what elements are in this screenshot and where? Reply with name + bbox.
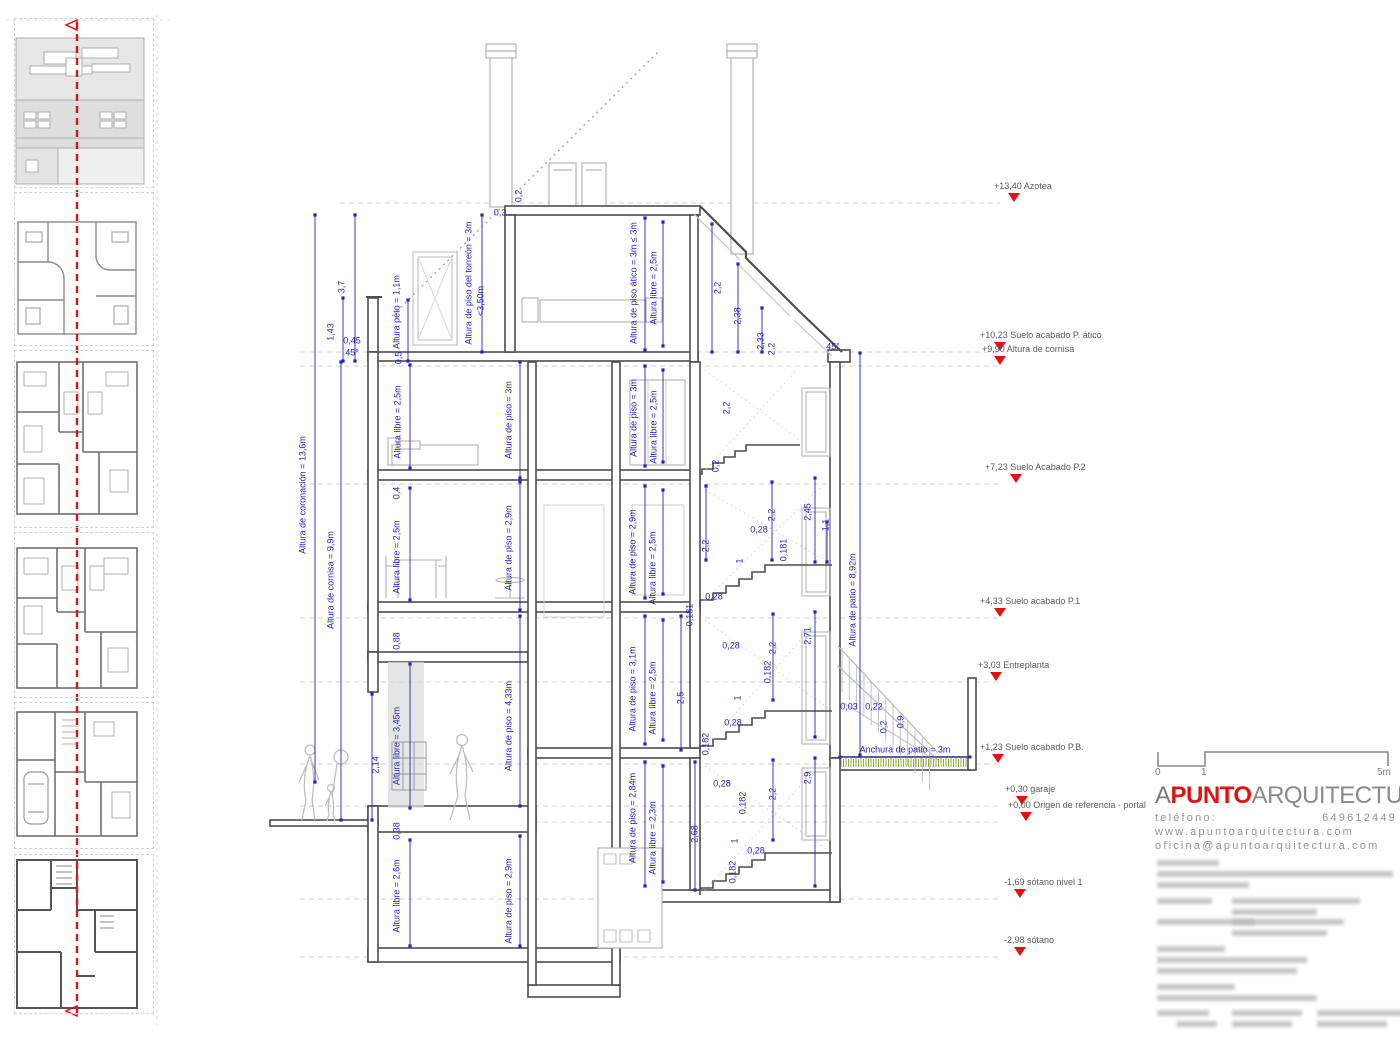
dimension-label: Altura de piso ático = 3m ≤ 3m <box>630 222 639 344</box>
dimension-label: Altura libre = 2,5m <box>649 661 658 734</box>
thumb-frame-6 <box>14 854 154 1014</box>
dimension-label: 2,2 <box>723 402 732 415</box>
dimension-label: 0,28 <box>750 526 768 535</box>
redacted-text-line <box>1232 930 1327 936</box>
level-marker-triangle <box>1014 889 1026 898</box>
dimension-label: Altura de piso = 3,1m <box>629 646 638 731</box>
email-address: oficina@apuntoarquitectura.com <box>1155 840 1380 852</box>
dimension-label: 0,2 <box>515 190 524 203</box>
dimension-label: 3,7 <box>338 281 347 294</box>
level-marker-triangle <box>1014 947 1026 956</box>
level-label: +1,23 Suelo acabado P.B. <box>980 743 1084 752</box>
level-marker-triangle <box>994 356 1006 365</box>
redacted-text-line <box>1157 968 1297 974</box>
phone-label: teléfono: <box>1155 812 1217 824</box>
dimension-label: Altura libre = 2,5m <box>393 520 402 593</box>
dimension-label: 0,28 <box>722 642 740 651</box>
dimension-label: 2,2 <box>768 509 777 522</box>
thumb-frame-3 <box>14 350 154 528</box>
dimension-label: Altura de piso = 3m <box>505 381 514 459</box>
phone-number: 649612449 <box>1322 812 1397 824</box>
elevator-shaft-panel <box>544 505 604 617</box>
dimension-label: Altura de cornisa = 9,9m <box>327 531 336 629</box>
dimension-label: 2,5 <box>677 692 686 705</box>
dimension-label: Altura libre = 2,6m <box>393 859 402 932</box>
dimension-label: 2,2 <box>714 282 723 295</box>
dimension-label: 0,28 <box>705 593 723 602</box>
thumb-frame-5 <box>14 702 154 849</box>
dimension-label: 2,14 <box>372 756 381 774</box>
dimension-label: Altura libre = 2,5m <box>394 385 403 458</box>
dimension-label: 0,5 <box>395 352 404 365</box>
web-line: www.apuntoarquitectura.com <box>1155 826 1397 838</box>
dimension-label: 2,33 <box>757 332 766 350</box>
scale-tick-1: 1 <box>1201 768 1207 778</box>
level-label: +0,00 Origen de referencia - portal <box>1008 801 1146 810</box>
dimension-label: 0,182 <box>764 661 773 684</box>
building-section-drawing <box>0 0 1400 1050</box>
dimension-label: 1,43 <box>327 323 336 341</box>
dimension-label: Altura de piso = 3m <box>630 379 639 457</box>
phone-line: teléfono: 649612449 <box>1155 812 1397 824</box>
dimension-label: 0,181 <box>686 604 695 627</box>
dimension-label: Altura peto = 1,1m <box>393 275 402 349</box>
redacted-text-line <box>1157 882 1249 888</box>
level-label: +10,23 Suelo acabado P. ático <box>980 331 1102 340</box>
dimension-label: Altura libre = 2,5m <box>649 531 658 604</box>
dimension-label: 0,28 <box>747 847 765 856</box>
redacted-text-line <box>1317 1021 1387 1027</box>
dimension-label: 0,3 <box>494 209 507 218</box>
redacted-text-line <box>1157 1010 1209 1016</box>
redacted-text-line <box>1157 860 1219 866</box>
dimension-label: 2,2 <box>702 540 711 553</box>
dimension-label: 1 <box>736 558 745 563</box>
dimension-label: 2,2 <box>768 343 777 356</box>
level-label: +4,33 Suelo acabado P.1 <box>980 597 1080 606</box>
dimension-label: 0,182 <box>729 861 738 884</box>
dimension-label: 2,68 <box>691 825 700 843</box>
redacted-text-line <box>1157 995 1317 1001</box>
floor-slabs <box>270 206 850 997</box>
dimension-label: Altura de coronación = 13,6m <box>299 436 308 554</box>
thumb-frame-2 <box>14 192 154 346</box>
redacted-text-line <box>1232 909 1317 915</box>
scale-tick-0: 0 <box>1155 768 1161 778</box>
redacted-text-line <box>1157 957 1307 963</box>
dimension-label: 0,4 <box>393 487 402 500</box>
redacted-text-line <box>1232 1010 1302 1016</box>
dimension-label: Altura de piso = 2,9m <box>505 505 514 590</box>
redacted-text-line <box>1317 1010 1400 1016</box>
dimension-label: <3,50m <box>477 286 486 316</box>
redacted-text-line <box>1157 984 1235 990</box>
email-line: oficina@apuntoarquitectura.com <box>1155 840 1397 852</box>
thumb-frame-4 <box>14 532 154 698</box>
redacted-text-line <box>1157 946 1225 952</box>
level-label: -2,98 sótano <box>1004 936 1054 945</box>
logo-part-a: A <box>1155 782 1171 809</box>
dimension-label: 0,22 <box>865 703 883 712</box>
dimension-label: Altura libre = 2,5m <box>650 251 659 324</box>
thumb-frame-1 <box>14 18 154 188</box>
chimney-left <box>486 44 516 207</box>
level-marker-triangle <box>1010 474 1022 483</box>
redacted-text-line <box>1157 898 1212 904</box>
dimension-label: 0,2 <box>880 721 889 734</box>
dimension-label: 1 <box>731 838 740 843</box>
level-marker-triangle <box>992 754 1004 763</box>
dimension-label: Altura libre = 2,5m <box>650 390 659 463</box>
height-envelope-line <box>392 52 658 316</box>
dimension-label: 0,28 <box>713 780 731 789</box>
dimension-label: 2,2 <box>769 788 778 801</box>
level-marker-triangle <box>994 608 1006 617</box>
level-label: +0,30 garaje <box>1005 785 1055 794</box>
dimension-label: 45° <box>345 349 359 358</box>
dimension-label: 2,9 <box>804 772 813 785</box>
level-marker-triangle <box>1020 812 1032 821</box>
dimension-label: Altura libre = 2,3m <box>649 801 658 874</box>
logo-part-punto: PUNTO <box>1171 782 1252 809</box>
dimension-label: 0,45 <box>343 337 361 346</box>
torreon-window <box>413 252 457 345</box>
dimension-label: 2,38 <box>734 307 743 325</box>
logo-part-arquitectura: ARQUITECTURA <box>1252 782 1400 809</box>
level-marker-triangle <box>990 672 1002 681</box>
redacted-text-line <box>1232 898 1360 904</box>
dimension-label: 0,182 <box>739 792 748 815</box>
level-marker-triangle <box>1008 193 1020 202</box>
level-label: +3,03 Entreplanta <box>978 661 1049 670</box>
dimension-label: Altura de piso = 2,84m <box>629 773 638 863</box>
dimension-label: 1,1 <box>822 519 831 532</box>
dimension-label: 45° <box>826 343 840 352</box>
dimension-label: Altura de piso = 2,9m <box>629 509 638 594</box>
dimension-label: Altura de piso del torreón = 3m <box>465 221 474 344</box>
redacted-text-line <box>1157 871 1393 877</box>
level-label: +7,23 Suelo Acabado P.2 <box>985 463 1086 472</box>
dimension-label: 2,2 <box>769 642 778 655</box>
dimension-label: Altura de piso = 4,33m <box>505 681 514 771</box>
dimension-label: 0,88 <box>393 632 402 650</box>
drawing-sheet: 3,71,430,4545°Altura peto = 1,1m0,5Altur… <box>0 0 1400 1050</box>
dimension-label: Altura de patio = 8,92m <box>849 553 858 646</box>
redacted-text-line <box>1177 1021 1217 1027</box>
chimney-right <box>727 44 757 254</box>
dimension-label: 0,03 <box>840 703 858 712</box>
scale-tick-5m: 5m <box>1377 768 1391 778</box>
dimension-label: 2,71 <box>804 627 813 645</box>
dimension-label: 2,45 <box>804 503 813 521</box>
web-url: www.apuntoarquitectura.com <box>1155 826 1354 838</box>
dimension-label: 0,28 <box>724 719 742 728</box>
scale-bar: 0 1 5m <box>1155 746 1397 778</box>
dimension-label: Altura de piso = 2,9m <box>505 858 514 943</box>
dimension-label: 0,2 <box>712 460 721 473</box>
dimension-label: 0,181 <box>780 539 789 562</box>
title-block: 0 1 5m APUNTOARQUITECTURA teléfono: 6496… <box>1155 746 1397 852</box>
level-label: +9,90 Altura de cornisa <box>982 345 1074 354</box>
level-label: +13,40 Azotea <box>994 182 1052 191</box>
level-label: -1,69 sótano nivel 1 <box>1004 878 1083 887</box>
dimension-label: Anchura de patio = 3m <box>860 746 951 755</box>
dimension-label: 0,9 <box>897 716 906 729</box>
dimension-label: Altura libre = 3,45m <box>393 707 402 785</box>
redacted-text-line <box>1232 919 1344 925</box>
roof-skylight-boxes <box>549 163 606 207</box>
dimension-label: 1 <box>734 695 743 700</box>
dimension-label: 0,182 <box>702 733 711 756</box>
firm-logo: APUNTOARQUITECTURA <box>1155 782 1397 810</box>
dimension-label: 0,38 <box>393 822 402 840</box>
redacted-text-line <box>1232 1021 1292 1027</box>
